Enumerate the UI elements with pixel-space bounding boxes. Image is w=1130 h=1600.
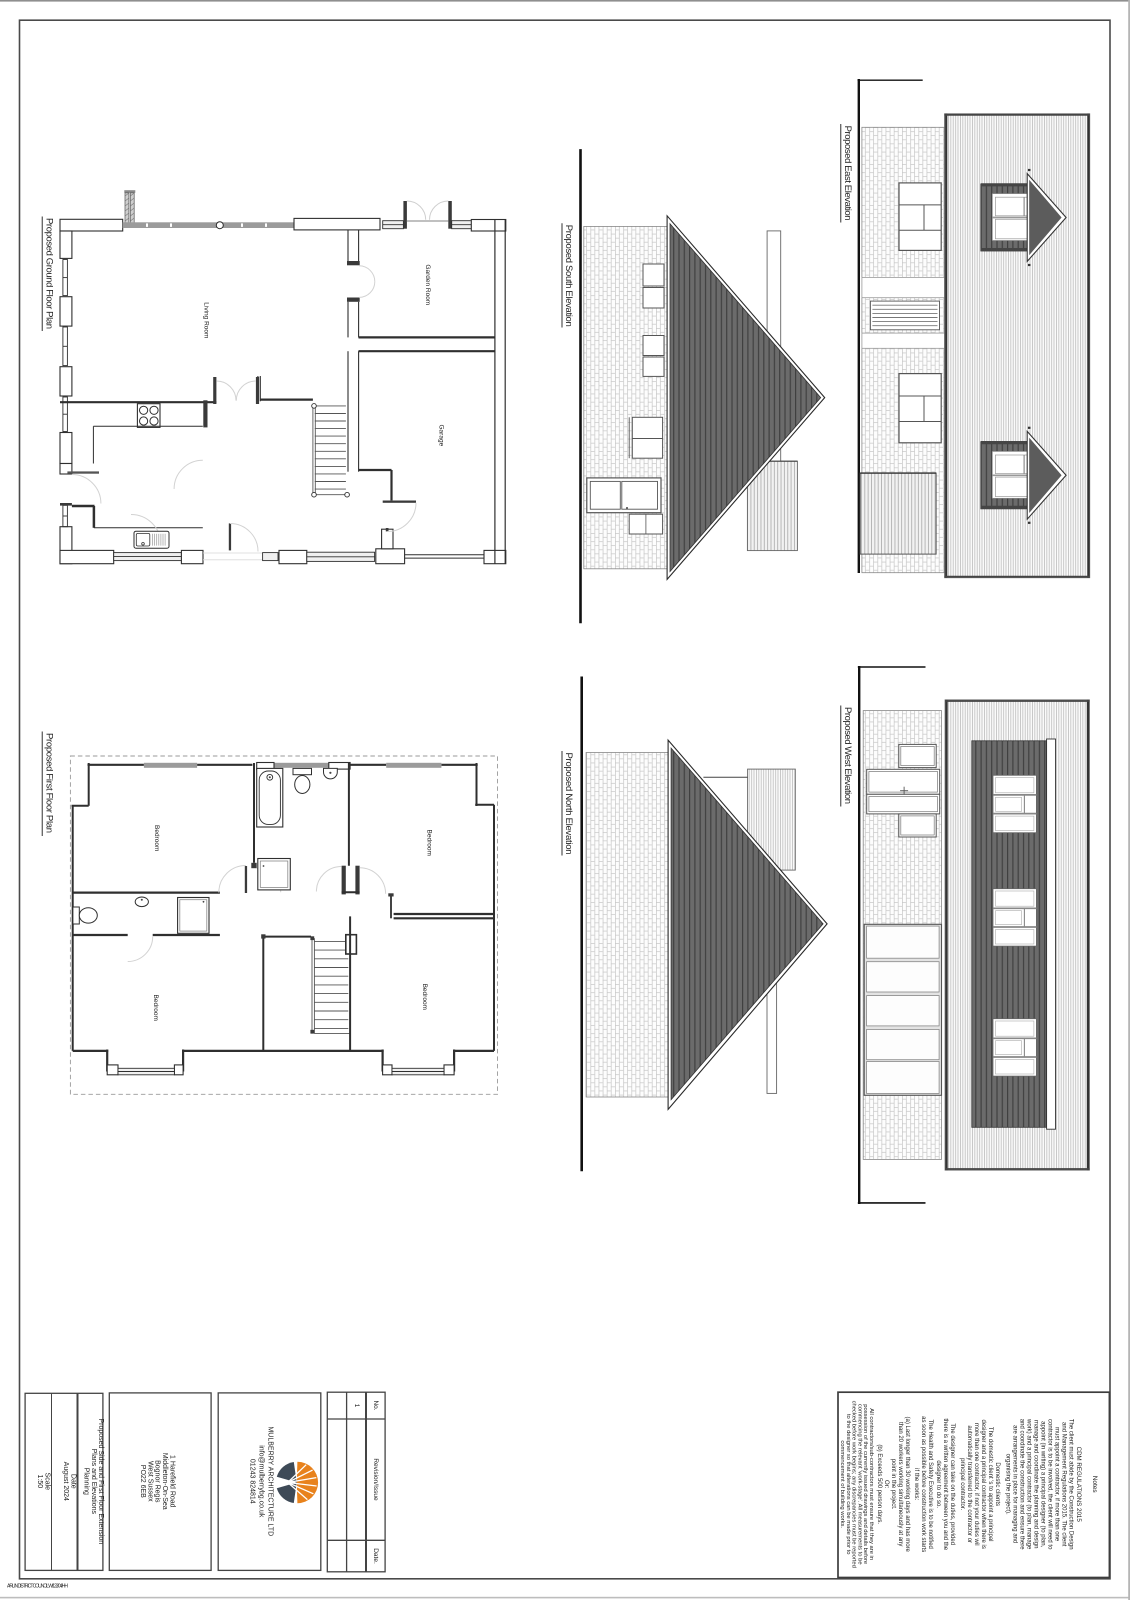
svg-text:must appoint a contractor, if: must appoint a contractor, if more than … <box>1054 1427 1060 1542</box>
svg-text:Proposed South Elevation: Proposed South Elevation <box>563 225 574 327</box>
svg-text:contractor is to be involved,: contractor is to be involved, the client… <box>1047 1419 1053 1550</box>
svg-text:principal contractor.: principal contractor. <box>959 1458 965 1510</box>
svg-text:as soon as possible before con: as soon as possible before construction … <box>920 1416 926 1552</box>
svg-text:Bognor Regis: Bognor Regis <box>154 1460 161 1503</box>
svg-text:organising the project).: organising the project). <box>1005 1454 1011 1515</box>
svg-text:1:50: 1:50 <box>36 1474 43 1488</box>
svg-text:more than one contractor, if n: more than one contractor, if not your du… <box>973 1423 979 1546</box>
svg-text:1 Harefield Road: 1 Harefield Road <box>168 1455 175 1508</box>
svg-text:are arrangements in place for: are arrangements in place for managing a… <box>1012 1425 1018 1543</box>
svg-text:Bedroom: Bedroom <box>152 995 159 1021</box>
svg-text:Proposed East Elevation: Proposed East Elevation <box>842 126 853 221</box>
svg-text:Date: Date <box>69 1474 76 1489</box>
svg-text:Planning: Planning <box>83 1468 90 1495</box>
svg-text:PO22 6EB: PO22 6EB <box>139 1465 146 1498</box>
svg-text:CDM REGULATIONS 2015: CDM REGULATIONS 2015 <box>1075 1447 1082 1523</box>
svg-text:No.: No. <box>372 1400 379 1410</box>
svg-text:Living Room: Living Room <box>202 302 209 338</box>
svg-text:designer to do so.: designer to do so. <box>935 1460 941 1508</box>
svg-text:Revision/Issue: Revision/Issue <box>372 1458 379 1501</box>
svg-text:(b) Exceeds 500 person days.: (b) Exceeds 500 person days. <box>876 1444 882 1524</box>
svg-text:manage and coordinate the plan: manage and coordinate the planning and d… <box>1033 1420 1039 1548</box>
svg-text:Or:: Or: <box>883 1480 889 1489</box>
svg-text:there is a written agreement b: there is a written agreement between you… <box>942 1418 948 1550</box>
svg-text:Plans and Elevations: Plans and Elevations <box>90 1449 97 1515</box>
svg-text:The designer can take on the d: The designer can take on the duties, pro… <box>949 1423 955 1545</box>
svg-text:info@mulberrybg.co.uk: info@mulberrybg.co.uk <box>258 1445 265 1518</box>
svg-text:(a) Last longer than 30 workin: (a) Last longer than 30 working days and… <box>904 1416 910 1552</box>
svg-text:than 20 workers working simult: than 20 workers working simultaneously a… <box>897 1422 903 1546</box>
svg-text:Bedroom: Bedroom <box>421 984 428 1010</box>
svg-text:Garden Room: Garden Room <box>424 264 431 305</box>
svg-text:ARUN DISTRICT COUNCIL W/123/04: ARUN DISTRICT COUNCIL W/123/04/HH <box>7 1584 68 1590</box>
svg-text:Domestic clients: Domestic clients <box>994 1462 1000 1506</box>
svg-text:Proposed North Elevation: Proposed North Elevation <box>563 753 574 855</box>
svg-text:Proposed Ground Floor Plan: Proposed Ground Floor Plan <box>43 218 54 329</box>
svg-text:commencement of building works: commencement of building works. <box>839 1440 845 1528</box>
svg-text:and Management Regulations 201: and Management Regulations 2015. The cli… <box>1061 1422 1067 1547</box>
svg-text:work) and a principal contract: work) and a principal contractor (to pla… <box>1026 1418 1032 1550</box>
svg-text:point in the project.: point in the project. <box>890 1459 896 1510</box>
svg-text:Proposed Side and First Floor: Proposed Side and First Floor Extension <box>97 1418 104 1544</box>
svg-text:Scale: Scale <box>43 1473 50 1491</box>
svg-text:Proposed West Elevation: Proposed West Elevation <box>842 707 853 804</box>
svg-text:1: 1 <box>353 1404 360 1408</box>
svg-text:Bedroom: Bedroom <box>153 825 160 851</box>
svg-text:August 2024: August 2024 <box>62 1462 69 1501</box>
svg-text:The client must abide by the C: The client must abide by the Constructio… <box>1068 1419 1074 1550</box>
svg-text:Garage: Garage <box>437 425 444 447</box>
svg-text:The Health and Safety Executiv: The Health and Safety Executive is to be… <box>927 1419 933 1548</box>
svg-text:Notes: Notes <box>1091 1476 1098 1494</box>
svg-text:Proposed First Floor Plan: Proposed First Floor Plan <box>43 733 54 833</box>
svg-text:West Sussex: West Sussex <box>146 1461 153 1502</box>
svg-text:Date.: Date. <box>372 1548 379 1564</box>
svg-text:designer and a principal contr: designer and a principal contractor when… <box>980 1419 986 1548</box>
svg-text:automatically transferred to t: automatically transferred to the contrac… <box>966 1425 972 1543</box>
svg-text:Bedroom: Bedroom <box>425 830 432 856</box>
svg-text:01243 824814: 01243 824814 <box>248 1459 255 1504</box>
svg-text:The domestic client 's to appo: The domestic client 's to appoint a prin… <box>987 1427 993 1542</box>
svg-text:appoint (in writing) a princip: appoint (in writing) a principal designe… <box>1040 1421 1046 1547</box>
svg-text:if the works:: if the works: <box>913 1468 919 1500</box>
svg-text:Middleton-On-Sea: Middleton-On-Sea <box>161 1453 168 1510</box>
svg-text:MULBERRY ARCHITECTURE LTD: MULBERRY ARCHITECTURE LTD <box>266 1426 273 1536</box>
svg-text:and coordinate the constructio: and coordinate the construction and ensu… <box>1019 1419 1025 1550</box>
